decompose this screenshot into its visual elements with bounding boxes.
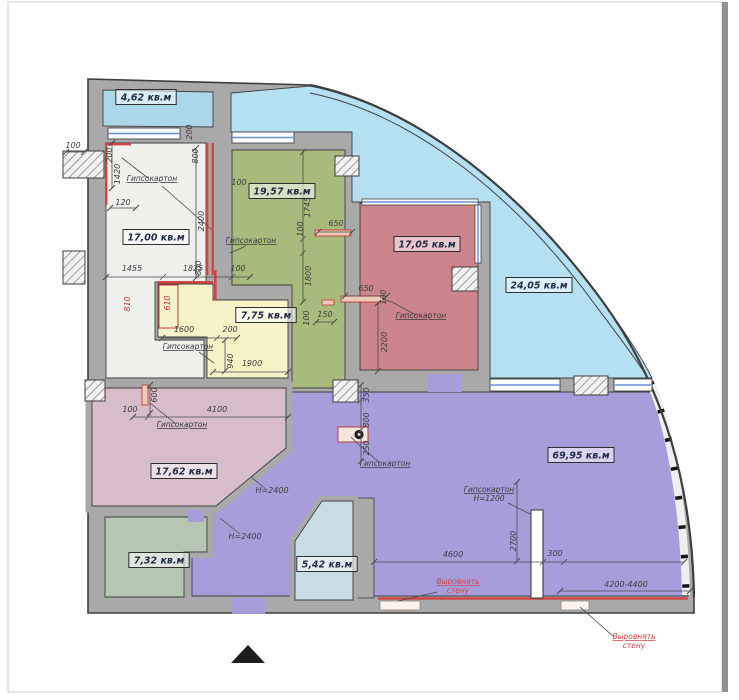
window bbox=[232, 132, 294, 143]
dimension-label: 2400 bbox=[197, 211, 206, 231]
dimension-label: 800 bbox=[362, 412, 371, 427]
drywall-annotation: Гипсокартон bbox=[127, 174, 178, 183]
drywall-piece bbox=[341, 296, 383, 302]
dimension-label: 100 bbox=[296, 221, 305, 236]
dimension-label: 1600 bbox=[174, 325, 194, 334]
align-wall-note: Выровнять bbox=[612, 632, 655, 641]
hatch-block bbox=[63, 151, 104, 178]
room-label-room-yellow: 7,75 кв.м bbox=[236, 308, 296, 323]
dimension-label: H=2400 bbox=[255, 486, 288, 495]
drywall-piece bbox=[315, 230, 351, 236]
room-area-text: 7,32 кв.м bbox=[134, 556, 185, 567]
window bbox=[108, 128, 180, 139]
floor-plan-page: 1002001420200800120240010017451006501800… bbox=[0, 0, 739, 700]
room-label-room-white: 17,00 кв.м bbox=[123, 230, 189, 245]
dimension-label: 200 bbox=[105, 147, 114, 162]
room-label-room-blue: 5,42 кв.м bbox=[297, 557, 357, 572]
dimension-label: 200 bbox=[185, 124, 194, 139]
room-area-text: 7,75 кв.м bbox=[241, 311, 292, 322]
drywall-annotation: Гипсокартон bbox=[157, 420, 208, 429]
dimension-label: 4600 bbox=[443, 550, 463, 559]
drywall-annotation: Гипсокартон bbox=[360, 459, 411, 468]
room-area-text: 4,62 кв.м bbox=[120, 93, 172, 104]
dimension-label: 810 bbox=[123, 296, 132, 311]
room-label-room-green: 19,57 кв.м bbox=[249, 184, 315, 199]
hatch-block bbox=[452, 267, 478, 291]
room-area-text: 19,57 кв.м bbox=[253, 187, 310, 198]
drywall-piece bbox=[322, 300, 334, 305]
dimension-label: 800 bbox=[191, 148, 200, 163]
hatch-block bbox=[335, 156, 359, 176]
room-area-text: 17,00 кв.м bbox=[127, 233, 184, 244]
window bbox=[475, 205, 481, 263]
drywall-annotation: Гипсокартон bbox=[464, 485, 515, 494]
drywall-partition-h1200 bbox=[531, 510, 543, 598]
wall-block bbox=[380, 601, 420, 610]
drywall-annotation-height: H=1200 bbox=[473, 494, 504, 503]
dimension-label: 600 bbox=[150, 387, 159, 402]
window bbox=[490, 379, 560, 391]
room-label-terrace: 24,05 кв.м bbox=[506, 278, 572, 293]
drywall-annotation: Гипсокартон bbox=[163, 342, 214, 351]
page-shadow bbox=[722, 2, 728, 692]
window bbox=[614, 379, 652, 391]
dimension-label: 120 bbox=[115, 198, 130, 207]
door-red-room bbox=[428, 374, 462, 392]
room-area-text: 69,95 кв.м bbox=[552, 451, 609, 462]
dimension-label: 940 bbox=[226, 353, 235, 368]
dimension-label: 350 bbox=[362, 387, 371, 402]
room-label-room-red: 17,05 кв.м bbox=[394, 237, 460, 252]
dimension-label: 4200-4400 bbox=[604, 580, 648, 589]
align-wall-note: стену bbox=[623, 641, 646, 650]
room-area-text: 17,62 кв.м bbox=[155, 467, 212, 478]
align-wall-note: стену bbox=[447, 586, 470, 595]
dimension-label: 1745 bbox=[303, 197, 312, 217]
room-label-room-purple: 69,95 кв.м bbox=[548, 448, 614, 463]
drywall-annotation: Гипсокартон bbox=[396, 311, 447, 320]
dimension-label: H=2400 bbox=[228, 532, 261, 541]
wall-block bbox=[561, 601, 589, 610]
dimension-label: 250 bbox=[362, 440, 371, 455]
room-label-balcony: 4,62 кв.м bbox=[116, 90, 176, 105]
hatch-block bbox=[63, 251, 85, 284]
door-sage-room bbox=[188, 510, 204, 522]
dimension-label: 100 bbox=[302, 310, 311, 325]
room-label-room-pink: 17,62 кв.м bbox=[151, 464, 217, 479]
dimension-label: 2200 bbox=[380, 332, 389, 352]
dimension-label: 800 bbox=[194, 260, 203, 275]
dimension-label: 2700 bbox=[509, 531, 518, 551]
hatch-block bbox=[574, 376, 608, 395]
window bbox=[362, 199, 478, 205]
room-area-text: 5,42 кв.м bbox=[302, 560, 353, 571]
electric-fixture bbox=[338, 427, 368, 442]
dimension-label: 100 bbox=[379, 289, 388, 304]
hatch-block bbox=[85, 380, 105, 401]
room-label-room-sage: 7,32 кв.м bbox=[129, 553, 189, 568]
dimension-label: 1900 bbox=[242, 359, 262, 368]
dimension-label: 300 bbox=[547, 549, 562, 558]
dimension-label: 1800 bbox=[304, 266, 313, 286]
door-entrance bbox=[232, 598, 265, 614]
dimension-label: 650 bbox=[328, 219, 343, 228]
dimension-label: 100 bbox=[65, 141, 80, 150]
hatch-block bbox=[333, 380, 358, 402]
dimension-label: 100 bbox=[122, 405, 137, 414]
align-wall-note: Выровнять bbox=[436, 577, 479, 586]
dimension-label: 100 bbox=[230, 264, 245, 273]
dimension-label: 200 bbox=[222, 325, 237, 334]
dimension-label: 1455 bbox=[122, 264, 142, 273]
dimension-label: 610 bbox=[163, 295, 172, 310]
dimension-label: 650 bbox=[358, 284, 373, 293]
room-area-text: 24,05 кв.м bbox=[510, 281, 567, 292]
dimension-label: 100 bbox=[231, 178, 246, 187]
room-area-text: 17,05 кв.м bbox=[398, 240, 455, 251]
drywall-annotation: Гипсокартон bbox=[226, 236, 277, 245]
dimension-label: 4100 bbox=[207, 405, 227, 414]
dimension-label: 150 bbox=[317, 310, 332, 319]
dimension-label: 1420 bbox=[113, 164, 122, 184]
floor-plan-drawing: 1002001420200800120240010017451006501800… bbox=[0, 0, 739, 700]
